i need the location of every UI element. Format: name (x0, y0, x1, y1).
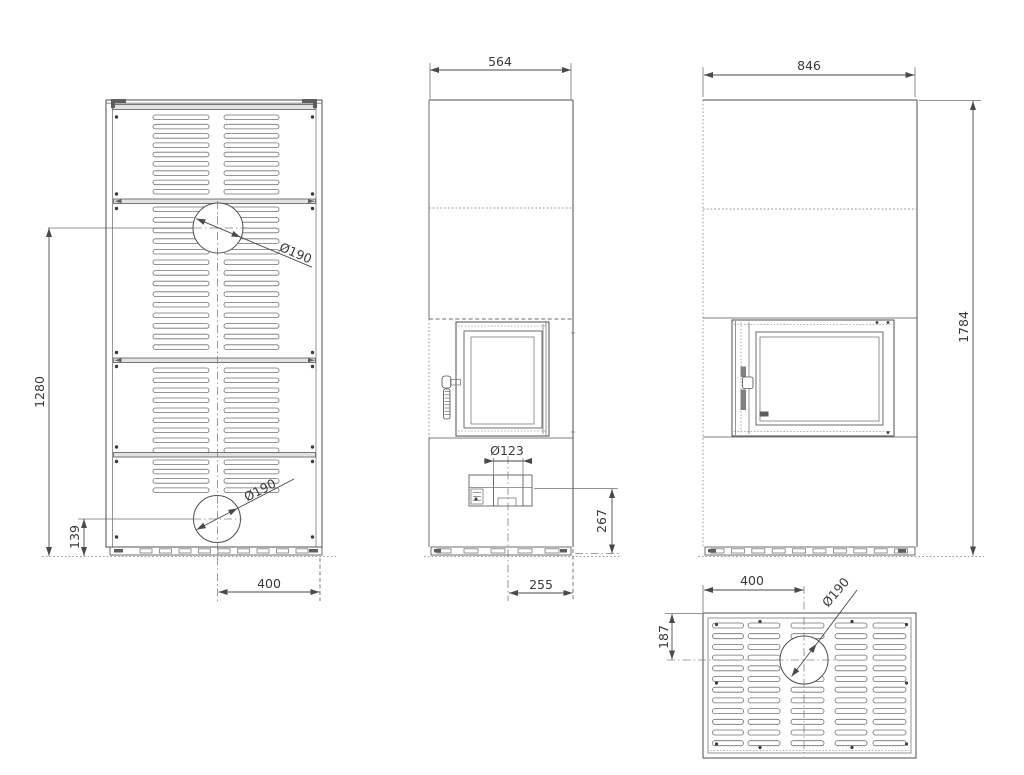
front-door-frame (756, 332, 883, 425)
dim-front-width-846: 846 (703, 58, 915, 97)
vent-slot (713, 719, 744, 724)
rear-bolt-dots (115, 115, 314, 538)
bolt-dot (887, 321, 890, 324)
dim-label-1280: 1280 (32, 376, 47, 408)
vent-slot (224, 152, 279, 157)
bolt-dot (311, 365, 314, 368)
vent-slot (873, 655, 906, 660)
vent-slot (153, 334, 209, 339)
vent-slot (835, 741, 867, 746)
vent-slot (153, 418, 209, 423)
vent-slot (224, 324, 279, 329)
front-base (705, 547, 915, 555)
vent-slot (791, 741, 824, 746)
vent-slot (153, 249, 209, 254)
drawing-page: 1280 139 400 Ø190 Ø190 (0, 0, 1024, 775)
vent-slot (153, 313, 209, 318)
bolt-dot (905, 681, 908, 684)
foot (277, 549, 289, 553)
vent-slot (153, 189, 209, 194)
vent-slot (153, 378, 209, 383)
vent-slot (791, 623, 824, 628)
dim-label-400-top: 400 (740, 573, 764, 588)
vent-slot (835, 666, 867, 671)
front-door-handle (741, 367, 754, 411)
vent-slot (748, 666, 780, 671)
vent-slot (873, 698, 906, 703)
vent-slot (224, 469, 279, 474)
vent-slot (224, 292, 279, 297)
vent-slot (835, 634, 867, 639)
foot (833, 549, 846, 553)
vent-slot (153, 180, 209, 185)
foot (772, 549, 785, 553)
front-view: 846 1784 (698, 58, 984, 557)
bolt-dot (311, 445, 314, 448)
vent-slot (791, 709, 824, 714)
front-door (732, 320, 894, 436)
side-body (429, 100, 573, 547)
vent-slot (748, 644, 780, 649)
vent-slot (224, 115, 279, 120)
vent-slot (835, 730, 867, 735)
dim-top-offset-400: 400 (703, 573, 804, 612)
front-bolt-dots (876, 321, 890, 434)
vent-slot (791, 687, 824, 692)
vent-slot (748, 709, 780, 714)
dim-side-depth-564: 564 (430, 54, 571, 99)
vent-slot (835, 698, 867, 703)
dim-top-offset-187: 187 (656, 614, 702, 660)
vent-slot (153, 134, 209, 139)
vent-slot (873, 644, 906, 649)
brand-mark (760, 412, 769, 417)
vent-slot (835, 644, 867, 649)
vent-slot (153, 281, 209, 286)
dim-rear-height-1280: 1280 (32, 228, 49, 556)
vent-slot (224, 460, 279, 465)
vent-slot (224, 368, 279, 373)
vent-slot (153, 448, 209, 453)
foot (296, 549, 308, 553)
vent-slot (873, 687, 906, 692)
vent-slot (713, 666, 744, 671)
base-feet (437, 549, 559, 553)
vent-slot (153, 171, 209, 176)
dim-inlet-offset-255: 255 (509, 549, 573, 601)
vent-slot (224, 189, 279, 194)
vent-slot (153, 469, 209, 474)
rear-frame (106, 99, 322, 547)
vent-slot (153, 388, 209, 393)
vent-slot (748, 623, 780, 628)
vent-slot (873, 666, 906, 671)
dim-rear-height-139: 139 (67, 519, 84, 556)
rear-view: 1280 139 400 Ø190 Ø190 (32, 99, 336, 601)
bolt-dot (905, 623, 908, 626)
vent-slot (873, 623, 906, 628)
vent-slot (713, 677, 744, 682)
base-feet (711, 549, 908, 553)
foot (793, 549, 806, 553)
rear-vent-slots (153, 115, 279, 493)
vent-slot (835, 687, 867, 692)
foot (854, 549, 867, 553)
rear-base (110, 547, 322, 555)
vent-slot (153, 162, 209, 167)
foot (140, 549, 152, 553)
bolt-dot (311, 115, 314, 118)
vent-slot (153, 115, 209, 120)
vent-slot (224, 438, 279, 443)
dim-label-267: 267 (594, 509, 609, 533)
vent-slot (224, 345, 279, 350)
vent-slot (748, 730, 780, 735)
bolt-dot (115, 445, 118, 448)
bolt-dot (311, 207, 314, 210)
vent-slot (153, 398, 209, 403)
vent-slot (153, 152, 209, 157)
vent-slot (835, 677, 867, 682)
side-view: 564 Ø123 267 255 (424, 54, 622, 601)
vent-slot (224, 271, 279, 276)
vent-slot (153, 345, 209, 350)
vent-slot (153, 408, 209, 413)
vent-slot (153, 302, 209, 307)
bolt-dot (115, 207, 118, 210)
vent-slot (153, 271, 209, 276)
vent-slot (224, 313, 279, 318)
vent-slot (153, 368, 209, 373)
vent-slot (748, 677, 780, 682)
vent-slot (224, 124, 279, 129)
vent-slot (224, 334, 279, 339)
vent-slot (224, 408, 279, 413)
bolt-dot (850, 620, 853, 623)
foot (491, 549, 505, 553)
vent-slot (873, 677, 906, 682)
foot (545, 549, 559, 553)
vent-slot (224, 398, 279, 403)
vent-slot (224, 134, 279, 139)
vent-slot (224, 428, 279, 433)
vent-slot (835, 719, 867, 724)
vent-slot (153, 143, 209, 148)
vent-slot (748, 655, 780, 660)
vent-slot (791, 719, 824, 724)
vent-slot (224, 302, 279, 307)
dim-front-height-1784: 1784 (919, 101, 981, 556)
dim-label-1784: 1784 (956, 311, 971, 343)
vent-slot (713, 634, 744, 639)
vent-slot (224, 260, 279, 265)
vent-slot (748, 634, 780, 639)
foot (199, 549, 211, 553)
foot (731, 549, 744, 553)
vent-slot (873, 634, 906, 639)
bolt-dot (115, 460, 118, 463)
bolt-dot (115, 351, 118, 354)
vent-slot (224, 448, 279, 453)
vent-slot (153, 292, 209, 297)
dim-label-139: 139 (67, 525, 82, 549)
foot (238, 549, 250, 553)
bolt-dot (311, 535, 314, 538)
bolt-dot (850, 746, 853, 749)
side-door (456, 322, 575, 436)
vent-slot (153, 260, 209, 265)
vent-slot (224, 171, 279, 176)
bolt-dot (311, 460, 314, 463)
vent-slot (748, 719, 780, 724)
vent-slot (153, 438, 209, 443)
vent-slot (713, 644, 744, 649)
vent-slot (835, 709, 867, 714)
front-door-glass (760, 337, 879, 421)
vent-slot (224, 281, 279, 286)
bolt-dot (876, 321, 879, 324)
vent-slot (224, 388, 279, 393)
foot (874, 549, 887, 553)
vent-slot (791, 698, 824, 703)
bolt-dot (715, 742, 718, 745)
vent-slot (873, 709, 906, 714)
dim-label-255: 255 (529, 577, 553, 592)
vent-slot (873, 741, 906, 746)
bolt-dot (311, 351, 314, 354)
foot (752, 549, 765, 553)
vent-slot (153, 488, 209, 493)
dim-inlet-height-267: 267 (534, 489, 620, 554)
vent-slot (873, 719, 906, 724)
bolt-dot (115, 535, 118, 538)
bolt-dot (758, 620, 761, 623)
vent-slot (791, 730, 824, 735)
dim-label-dia123: Ø123 (490, 443, 524, 458)
vent-slot (153, 124, 209, 129)
vent-slot (153, 324, 209, 329)
vent-slot (713, 730, 744, 735)
foot (218, 549, 230, 553)
vent-slot (835, 623, 867, 628)
bolt-dot (715, 623, 718, 626)
foot (160, 549, 172, 553)
foot (464, 549, 478, 553)
vent-slot (835, 655, 867, 660)
vent-slot (224, 378, 279, 383)
dim-rear-offset-400: 400 (219, 558, 321, 601)
dim-label-dia190-top: Ø190 (819, 574, 852, 609)
dim-label-187: 187 (656, 625, 671, 649)
vent-slot (873, 730, 906, 735)
vent-slot (224, 418, 279, 423)
bolt-dot (115, 365, 118, 368)
vent-slot (748, 698, 780, 703)
base-feet (140, 549, 308, 553)
vent-slot (748, 741, 780, 746)
bolt-dot (905, 742, 908, 745)
air-inlet-assembly (469, 458, 532, 506)
foot (813, 549, 826, 553)
bolt-dot (311, 192, 314, 195)
dim-label-400-rear: 400 (257, 576, 281, 591)
side-base (431, 547, 571, 555)
bolt-dot (715, 681, 718, 684)
dim-label-846: 846 (797, 58, 821, 73)
vent-slot (153, 479, 209, 484)
bolt-dot (115, 115, 118, 118)
side-door-handle (442, 376, 461, 419)
vent-slot (224, 162, 279, 167)
top-view: 400 187 Ø190 (656, 573, 916, 758)
vent-slot (713, 655, 744, 660)
technical-drawing: 1280 139 400 Ø190 Ø190 (0, 0, 1024, 775)
vent-slot (224, 143, 279, 148)
vent-slot (748, 687, 780, 692)
foot (518, 549, 532, 553)
vent-slot (153, 428, 209, 433)
vent-slot (153, 460, 209, 465)
vent-slot (713, 698, 744, 703)
dim-label-dia190-upper: Ø190 (277, 239, 314, 266)
foot (257, 549, 269, 553)
bolt-dot (115, 192, 118, 195)
vent-slot (713, 709, 744, 714)
vent-slot (713, 687, 744, 692)
vent-slot (224, 180, 279, 185)
dim-label-564: 564 (488, 54, 512, 69)
bolt-dot (887, 431, 890, 434)
bolt-dot (758, 746, 761, 749)
foot (179, 549, 191, 553)
